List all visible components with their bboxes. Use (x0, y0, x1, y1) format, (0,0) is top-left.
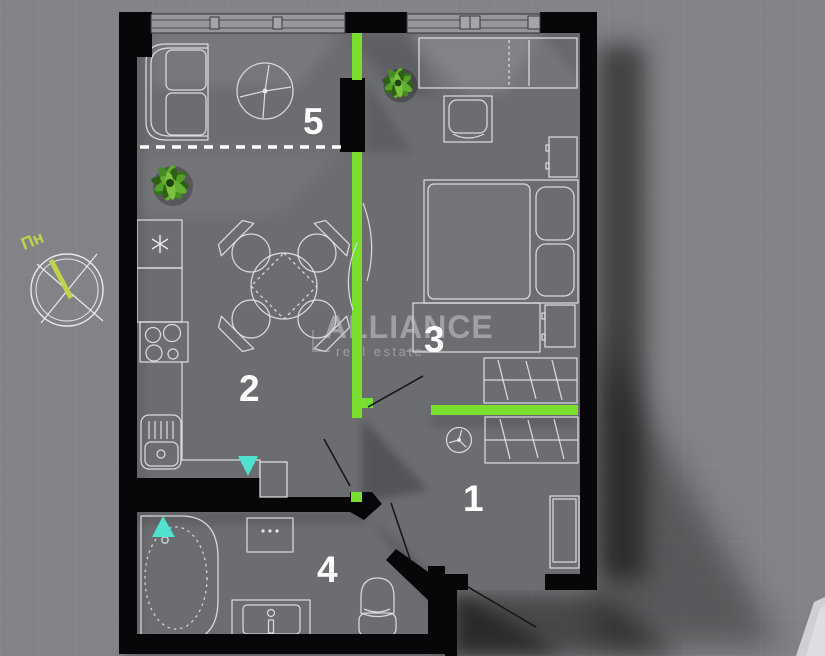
bedroom-window (407, 14, 540, 33)
green-wall (362, 398, 373, 408)
room-label-bedroom: 3 (424, 319, 445, 360)
green-wall (352, 152, 362, 418)
room-label-kitchen-living: 2 (239, 368, 260, 409)
floor-plan-canvas: ALLIANCE real estate (0, 0, 825, 656)
balcony-window (151, 14, 345, 33)
green-wall (431, 405, 578, 415)
compass: Пн (18, 228, 103, 326)
green-wall (352, 33, 362, 80)
brand-name: ALLIANCE (324, 309, 494, 345)
bedroom-wardrobe (419, 38, 577, 88)
room-label-balcony: 5 (303, 101, 324, 142)
floor-plan: ALLIANCE real estate (0, 0, 825, 656)
room-label-bathroom: 4 (317, 549, 338, 590)
adjacent-structure (796, 597, 825, 656)
green-wall (351, 492, 362, 502)
room-label-hallway: 1 (463, 478, 484, 519)
doorway-threshold (260, 462, 287, 497)
compass-north-label: Пн (18, 228, 46, 254)
